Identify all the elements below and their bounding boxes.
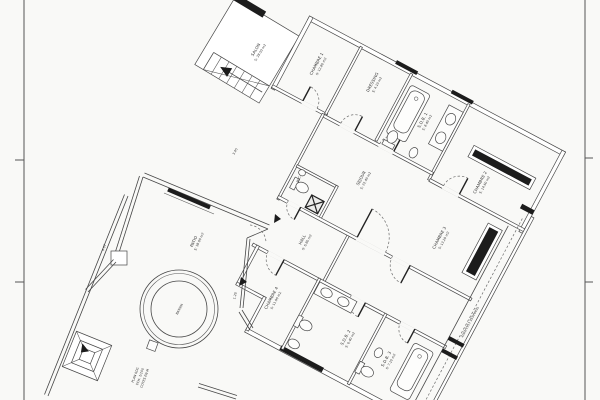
floor-plan-drawing: SALON S: 28.50 m2 — [0, 0, 600, 400]
room-label: W.C. — [295, 175, 302, 183]
opening-marker-icon — [274, 214, 281, 223]
gate-swing — [250, 225, 266, 243]
basin-pool: BASSIN — [140, 270, 218, 348]
bathtub-icon — [389, 342, 434, 400]
sheet-border — [15, 0, 593, 400]
bidet-icon — [407, 146, 419, 159]
drain-box — [147, 340, 159, 352]
patio: BASSIN PATIO S: 38.00 m2 — [45, 173, 282, 399]
wing-a: SALON S: 28.50 m2 — [193, 0, 301, 103]
door-main — [357, 209, 400, 252]
window-bar — [279, 345, 324, 372]
closet — [462, 223, 502, 280]
dimension-text: 1.20 — [232, 292, 238, 300]
salon-room — [195, 0, 299, 103]
stepped-fountain — [62, 331, 111, 380]
sink-icon — [373, 346, 385, 359]
east-facade — [519, 150, 566, 233]
toilet-icon — [293, 315, 314, 334]
dimension-text: 3.45 — [232, 147, 239, 155]
title-block: PLAN RDC ECH: 1/100 COTES EN M — [130, 365, 150, 389]
floor-plan-scan: SALON S: 28.50 m2 — [0, 0, 600, 400]
basin-label: BASSIN — [175, 303, 184, 316]
window-bar — [168, 190, 210, 208]
wall-jog — [111, 251, 127, 265]
